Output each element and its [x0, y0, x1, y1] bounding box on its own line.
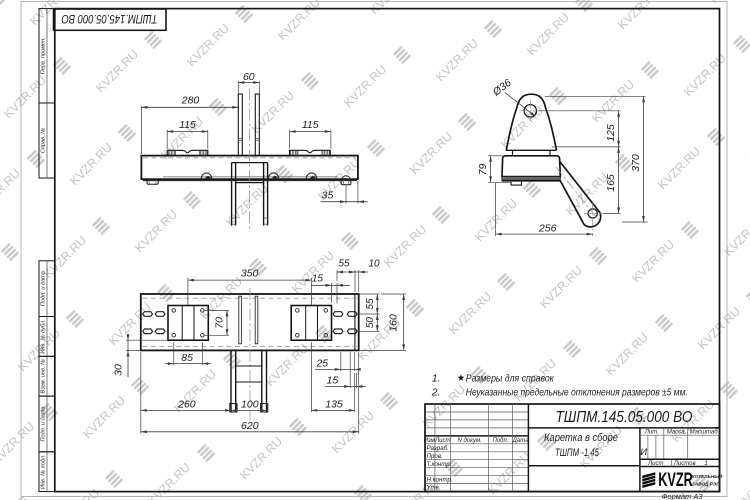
svg-text:370: 370 [630, 154, 642, 172]
svg-text:125: 125 [605, 124, 617, 142]
svg-text:30: 30 [113, 364, 125, 376]
svg-text:60: 60 [243, 71, 255, 83]
svg-text:ТШПМ.145.05.000 ВО: ТШПМ.145.05.000 ВО [61, 12, 157, 24]
svg-text:35: 35 [322, 190, 334, 202]
svg-text:Разраб.: Разраб. [427, 445, 449, 452]
svg-text:Формат А3: Формат А3 [661, 492, 703, 500]
svg-text:Справ. №: Справ. № [41, 128, 47, 153]
svg-text:Перв. примен.: Перв. примен. [41, 37, 47, 74]
svg-text:Каретка в сборе: Каретка в сборе [544, 432, 618, 444]
svg-text:165: 165 [605, 174, 617, 192]
svg-text:55: 55 [338, 259, 350, 270]
svg-text:ТШПМ.145.05.000 ВО: ТШПМ.145.05.000 ВО [556, 409, 693, 426]
svg-text:Инв. № дубл.: Инв. № дубл. [41, 319, 47, 353]
svg-text:55: 55 [365, 298, 376, 310]
svg-text:Лист: Лист [647, 461, 663, 467]
svg-text:2.: 2. [431, 386, 441, 398]
svg-text:Неуказанные предельные отклоне: Неуказанные предельные отклонения размер… [466, 387, 688, 398]
svg-text:Т.контр.: Т.контр. [427, 461, 452, 468]
svg-text:1.: 1. [432, 372, 441, 384]
svg-text:620: 620 [241, 420, 259, 432]
svg-text:Подп. и дата: Подп. и дата [41, 406, 47, 441]
svg-text:1: 1 [704, 460, 708, 467]
svg-text:15: 15 [312, 274, 324, 285]
svg-text:10: 10 [368, 259, 380, 270]
svg-text:115: 115 [179, 119, 196, 131]
svg-text:Пров.: Пров. [427, 453, 443, 460]
svg-text:N докум.: N докум. [457, 438, 481, 444]
svg-text:Масштаб: Масштаб [690, 430, 719, 436]
svg-text:Размеры для справок: Размеры для справок [466, 373, 555, 384]
svg-text:70: 70 [214, 317, 226, 329]
svg-text:25: 25 [315, 357, 328, 369]
svg-text:115: 115 [302, 119, 319, 131]
svg-text:Лист: Лист [434, 438, 450, 444]
svg-text:КОТЕЛЬНЫЙ: КОТЕЛЬНЫЙ [692, 472, 723, 479]
svg-text:Утв.: Утв. [426, 485, 441, 492]
svg-text:Лит.: Лит. [644, 430, 659, 436]
svg-text:280: 280 [181, 95, 200, 107]
svg-text:350: 350 [241, 268, 259, 280]
svg-text:Масса: Масса [667, 430, 685, 436]
svg-text:Подп. и дата: Подп. и дата [41, 271, 47, 306]
svg-text:160: 160 [388, 314, 400, 332]
svg-text:Подп.: Подп. [493, 438, 509, 444]
svg-text:135: 135 [325, 399, 343, 411]
svg-text:50: 50 [365, 317, 376, 329]
svg-text:260: 260 [177, 399, 196, 411]
svg-text:79: 79 [477, 164, 489, 176]
svg-text:85: 85 [181, 352, 193, 364]
svg-text:Дата: Дата [512, 438, 529, 444]
svg-text:И: И [640, 447, 647, 458]
svg-text:256: 256 [538, 223, 557, 235]
svg-text:15: 15 [327, 375, 339, 387]
svg-text:Взам. инв. №: Взам. инв. № [41, 359, 47, 394]
svg-text:ЗАВОД РЭП: ЗАВОД РЭП [692, 481, 720, 486]
svg-text:ТШПМ -1,45: ТШПМ -1,45 [555, 447, 600, 459]
svg-text:KVZR: KVZR [658, 469, 693, 490]
svg-text:100: 100 [241, 399, 259, 411]
svg-text:Листов: Листов [673, 461, 696, 467]
svg-text:Н.контр.: Н.контр. [427, 477, 453, 484]
svg-text:Инв. № подл.: Инв. № подл. [41, 454, 47, 489]
